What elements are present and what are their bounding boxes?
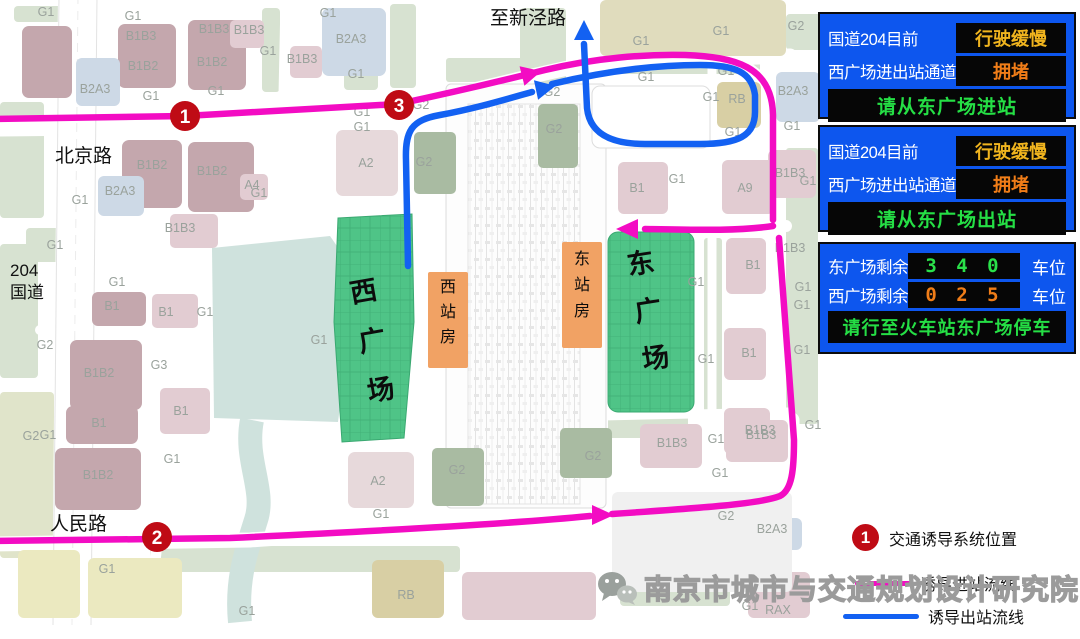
board-row-label: 国道204目前 <box>828 139 956 163</box>
block-label: G1 <box>784 119 801 133</box>
block-label: B1B3 <box>199 22 230 36</box>
parking-count-east: 3 4 0 <box>908 253 1020 279</box>
block-label: G1 <box>708 432 725 446</box>
block-label: B1 <box>741 346 756 360</box>
board-row-label: 西广场进出站通道 <box>828 59 956 83</box>
board-row-label: 西广场剩余 <box>828 283 908 307</box>
guidance-marker-3: 3 <box>384 90 414 120</box>
east-station-label: 东站房 <box>574 250 590 320</box>
legend-marker-icon: 1 <box>852 524 879 551</box>
block-label: G1 <box>260 44 277 58</box>
block-label: G1 <box>40 428 57 442</box>
block-label: G2 <box>23 429 40 443</box>
east-station-building: 东站房 <box>562 242 602 348</box>
block-label: G1 <box>109 275 126 289</box>
block-label: G1 <box>805 418 822 432</box>
block-label: G1 <box>703 90 720 104</box>
parking-count-west: 0 2 5 <box>908 282 1020 308</box>
traffic-board-exit: 国道204目前 行驶缓慢 西广场进出站通道 拥堵 请从东广场出站 <box>818 125 1076 232</box>
beijing-road-label: 北京路 <box>55 145 112 167</box>
marker-number: 3 <box>394 96 405 117</box>
block-label: B2A3 <box>105 184 136 198</box>
block-label: B1 <box>745 258 760 272</box>
block-label: G1 <box>143 89 160 103</box>
block-label: B1B3 <box>126 29 157 43</box>
block-label: G1 <box>794 298 811 312</box>
block-label: RB <box>728 92 745 106</box>
block-label: G2 <box>37 338 54 352</box>
block-label: G1 <box>311 333 328 347</box>
legend-marker-row: 1 交通诱导系统位置 <box>838 524 1076 551</box>
block-label: G1 <box>633 34 650 48</box>
block-label: G2 <box>718 509 735 523</box>
board-row-label: 东广场剩余 <box>828 254 908 278</box>
board-row-value: 行驶缓慢 <box>956 136 1066 166</box>
block-label: G2 <box>546 122 563 136</box>
parking-unit: 车位 <box>1032 283 1066 308</box>
block-label: G1 <box>251 186 268 200</box>
block-label: G1 <box>99 562 116 576</box>
block-label: B1B3 <box>657 436 688 450</box>
watermark-text: 南京市城市与交通规划设计研究院 <box>644 568 1079 608</box>
block-label: G1 <box>795 280 812 294</box>
block-label: G1 <box>38 5 55 19</box>
block-label: B2A3 <box>80 82 111 96</box>
marker-number: 1 <box>180 107 191 128</box>
block-label: B1B3 <box>165 221 196 235</box>
block-label: G1 <box>354 120 371 134</box>
block-label: B1 <box>104 299 119 313</box>
block-label: G1 <box>164 452 181 466</box>
block-label: B1B2 <box>197 164 228 178</box>
block-label: G2 <box>585 449 602 463</box>
board-row-value: 拥堵 <box>956 56 1066 86</box>
block-label: G1 <box>208 84 225 98</box>
block-label: G1 <box>688 275 705 289</box>
traffic-board-entry: 国道204目前 行驶缓慢 西广场进出站通道 拥堵 请从东广场进站 <box>818 12 1076 119</box>
block-label: B2A3 <box>336 32 367 46</box>
marker-number: 2 <box>152 528 163 549</box>
block-label: B1B2 <box>84 366 115 380</box>
block-label: B1B3 <box>746 428 777 442</box>
renmin-road-label: 人民路 <box>50 513 107 535</box>
block-label: G1 <box>794 343 811 357</box>
board-row-label: 西广场进出站通道 <box>828 172 956 196</box>
block-label: G2 <box>449 463 466 477</box>
block-label: B1B2 <box>137 158 168 172</box>
block-label: B1 <box>158 305 173 319</box>
block-label: G1 <box>713 24 730 38</box>
block-label: B1B3 <box>234 23 265 37</box>
west-station-building: 西站房 <box>428 272 468 368</box>
watermark: 南京市城市与交通规划设计研究院 <box>596 568 1079 608</box>
block-label: G1 <box>348 67 365 81</box>
board-message: 请从东广场进站 <box>828 89 1066 122</box>
block-label: B2A3 <box>757 522 788 536</box>
block-label: B1B3 <box>287 52 318 66</box>
block-label: G1 <box>72 193 89 207</box>
exit-line-swatch <box>843 614 919 619</box>
block-label: A2 <box>370 474 385 488</box>
block-label: G3 <box>151 358 168 372</box>
block-label: G1 <box>698 352 715 366</box>
block-label: RB <box>397 588 414 602</box>
block-label: B1 <box>91 416 106 430</box>
g204-road-label-1: 204 <box>10 261 38 280</box>
parking-unit: 车位 <box>1032 254 1066 279</box>
board-message: 请从东广场出站 <box>828 202 1066 235</box>
block-label: B1B2 <box>128 59 159 73</box>
block-label: B2A3 <box>778 84 809 98</box>
block-label: G1 <box>239 604 256 618</box>
legend-marker-label: 交通诱导系统位置 <box>889 526 1017 550</box>
block-label: G1 <box>638 70 655 84</box>
zhixinjing-road-label: 至新泾路 <box>490 7 566 29</box>
guidance-marker-2: 2 <box>142 522 172 552</box>
block-label: G1 <box>800 174 817 188</box>
block-label: G1 <box>320 6 337 20</box>
traffic-guidance-slide: 西站房 东站房 西广场 东广场 G1G1B1B3B1B2B1B3B1B2B1B3… <box>0 0 1080 639</box>
board-row-value: 拥堵 <box>956 169 1066 199</box>
parking-board: 东广场剩余 3 4 0 车位 西广场剩余 0 2 5 车位 请行至火车站东广场停… <box>818 242 1076 354</box>
block-label: B1 <box>629 181 644 195</box>
board-row-value: 行驶缓慢 <box>956 23 1066 53</box>
guidance-marker-1: 1 <box>170 101 200 131</box>
block-label: G1 <box>712 466 729 480</box>
board-row-label: 国道204目前 <box>828 26 956 50</box>
block-label: A9 <box>737 181 752 195</box>
block-label: G1 <box>197 305 214 319</box>
block-label: G1 <box>125 9 142 23</box>
block-label: B1 <box>173 404 188 418</box>
block-label: G1 <box>373 507 390 521</box>
block-label: B1B2 <box>197 55 228 69</box>
west-station-label: 西站房 <box>440 279 456 346</box>
block-label: G1 <box>669 172 686 186</box>
g204-road-label-2: 国道 <box>10 283 44 302</box>
block-label: A2 <box>358 156 373 170</box>
block-label: G2 <box>416 155 433 169</box>
board-message: 请行至火车站东广场停车 <box>828 311 1066 343</box>
wechat-icon <box>596 570 638 606</box>
block-label: G2 <box>788 19 805 33</box>
block-label: B1B2 <box>83 468 114 482</box>
block-label: G1 <box>47 238 64 252</box>
